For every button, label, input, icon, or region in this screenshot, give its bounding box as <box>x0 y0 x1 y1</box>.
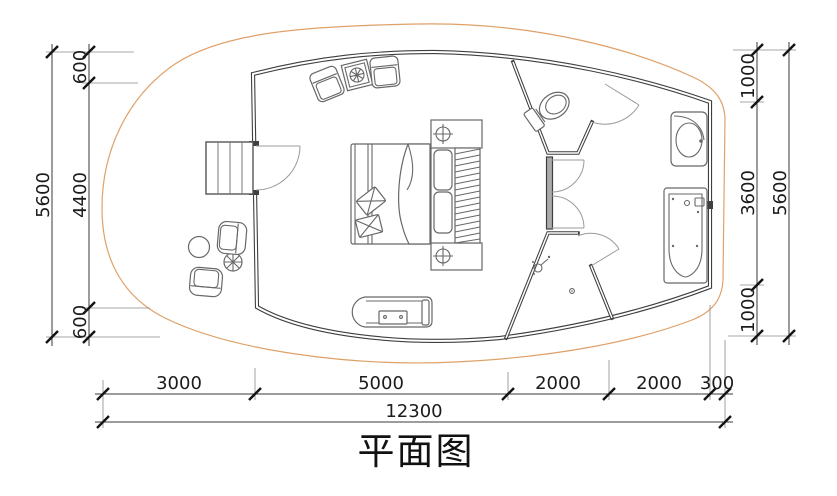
dim-left-seg: 600 <box>70 305 91 339</box>
dim-bottom-seg: 2000 <box>636 373 682 394</box>
dim-bottom-overall: 12300 <box>385 401 442 422</box>
dim-left-overall: 5600 <box>33 172 54 218</box>
dim-right-seg: 1000 <box>738 53 759 99</box>
armchair-right <box>370 56 401 89</box>
partition-wall <box>547 157 553 229</box>
dim-right-seg: 1000 <box>738 287 759 333</box>
entry-steps <box>206 142 253 194</box>
dimension-right: 1000 3600 1000 5600 <box>728 42 796 345</box>
patio-set <box>189 221 248 298</box>
dim-bottom-seg: 300 <box>700 373 734 394</box>
dim-right-seg: 3600 <box>738 170 759 216</box>
floor-plan-canvas: 5600 600 4400 600 1000 3600 1000 5600 30… <box>0 0 837 496</box>
dim-left-seg: 4400 <box>70 172 91 218</box>
bedside-cushion <box>434 150 452 190</box>
patio-plant <box>224 253 242 271</box>
bathtub <box>664 188 707 283</box>
patio-chair <box>189 267 223 298</box>
side-table <box>341 59 373 91</box>
dim-bottom-seg: 5000 <box>358 373 404 394</box>
dim-bottom-seg: 2000 <box>535 373 581 394</box>
bedside-cushion <box>434 192 452 233</box>
dim-left-seg: 600 <box>70 50 91 84</box>
duvet <box>399 144 430 244</box>
dim-right-overall: 5600 <box>770 170 791 216</box>
patio-chair <box>217 221 248 255</box>
dimension-left: 5600 600 4400 600 <box>33 44 160 346</box>
sink-faucet <box>699 139 703 143</box>
floor-plan-sheet: 5600 600 4400 600 1000 3600 1000 5600 30… <box>0 0 837 496</box>
vanity-sink <box>671 112 707 166</box>
patio-table <box>189 237 210 258</box>
drawing-title: 平面图 <box>358 430 475 473</box>
dim-bottom-seg: 3000 <box>156 373 202 394</box>
tv-bench <box>352 297 432 327</box>
